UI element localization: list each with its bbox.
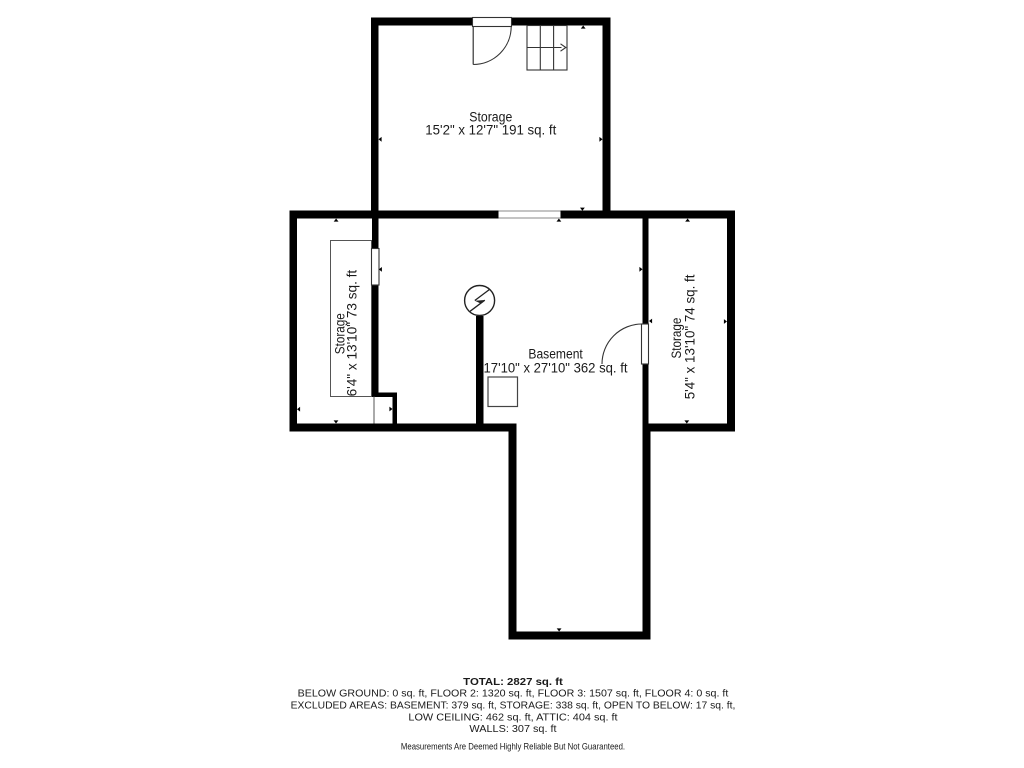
svg-text:TOTAL: 2827 sq. ft: TOTAL: 2827 sq. ft: [463, 676, 563, 688]
svg-text:EXCLUDED AREAS: BASEMENT: 379: EXCLUDED AREAS: BASEMENT: 379 sq. ft, ST…: [291, 699, 736, 711]
svg-text:5'4" x 13'10" 74 sq. ft: 5'4" x 13'10" 74 sq. ft: [683, 274, 698, 399]
svg-text:17'10" x 27'10" 362 sq. ft: 17'10" x 27'10" 362 sq. ft: [484, 361, 628, 376]
svg-text:15'2" x 12'7" 191 sq. ft: 15'2" x 12'7" 191 sq. ft: [425, 122, 556, 137]
svg-text:Basement: Basement: [528, 346, 583, 361]
svg-text:BELOW GROUND: 0 sq. ft, FLOOR: BELOW GROUND: 0 sq. ft, FLOOR 2: 1320 sq…: [298, 687, 729, 699]
svg-text:LOW CEILING: 462 sq. ft, ATTIC: LOW CEILING: 462 sq. ft, ATTIC: 404 sq. …: [408, 711, 617, 723]
svg-text:Measurements Are Deemed Highly: Measurements Are Deemed Highly Reliable …: [401, 742, 625, 752]
svg-text:WALLS: 307 sq. ft: WALLS: 307 sq. ft: [469, 723, 556, 735]
svg-text:6'4" x 13'10" 73 sq. ft: 6'4" x 13'10" 73 sq. ft: [344, 270, 359, 397]
